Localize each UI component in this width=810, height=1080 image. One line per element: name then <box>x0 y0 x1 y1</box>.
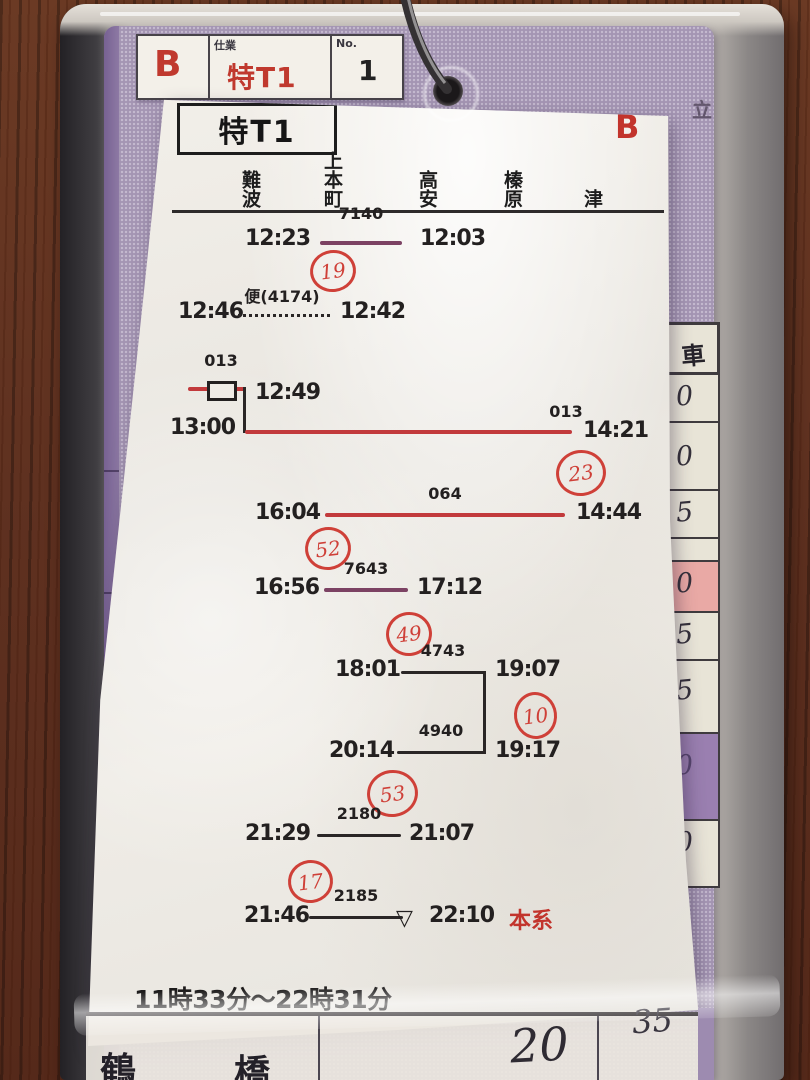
row-divider <box>597 1016 599 1080</box>
train-number: 013 <box>199 351 243 370</box>
station-name: 榛原 <box>501 170 523 208</box>
run-line <box>325 513 565 517</box>
run-line <box>320 241 402 245</box>
tag-duty-value: 特T1 <box>227 56 297 96</box>
duty-time-range: 11時33分〜22時31分 <box>134 980 392 1016</box>
run-line <box>401 671 485 674</box>
dep-time: 21:29 <box>245 821 310 846</box>
timetable-paper: 特T1 B 難波 上本町 高安 榛原 津 12:23 7140 12:03 19… <box>88 98 700 1046</box>
dep-time: 16:56 <box>254 575 319 600</box>
station-header-row: 難波 上本町 高安 榛原 津 <box>88 144 700 210</box>
punch-hole <box>433 76 463 106</box>
train-number: 便(4174) <box>230 283 334 307</box>
train-number: 4940 <box>397 721 485 740</box>
branch-time: 12:49 <box>255 380 320 405</box>
tag-number-value: 1 <box>358 54 377 87</box>
train-number: 7643 <box>324 559 408 578</box>
run-line <box>309 916 403 919</box>
train-number: 064 <box>405 484 485 503</box>
train-number: 4743 <box>401 641 485 660</box>
bracket-connector-line <box>483 671 486 754</box>
paper-corner-letter: B <box>615 108 639 146</box>
arr-time: 14:21 <box>583 418 648 443</box>
tag-number-header: No. <box>336 37 357 50</box>
tag-shift-letter: B <box>154 44 181 85</box>
box-marker <box>207 381 237 401</box>
run-line <box>324 588 408 592</box>
run-line <box>397 751 485 754</box>
dep-time: 13:00 <box>170 415 235 440</box>
row-divider <box>318 1016 320 1080</box>
row-purple-edge <box>698 1008 714 1080</box>
header-rule <box>172 210 664 213</box>
dep-time: 18:01 <box>335 657 400 682</box>
handwritten-circle-number: 23 <box>553 447 608 499</box>
arr-time: 19:07 <box>495 657 560 682</box>
station-name: 高安 <box>416 170 438 208</box>
tag-shift-cell: B <box>138 36 210 98</box>
train-number: 2180 <box>317 804 401 823</box>
bottom-station-char: 橋 <box>234 1044 270 1080</box>
run-line <box>317 834 401 837</box>
card-bottom-row: 鶴 橋 20 35 <box>86 1012 702 1080</box>
step-connector-line <box>243 387 246 433</box>
arr-time: 12:42 <box>340 299 405 324</box>
tag-duty-cell: 仕業 特T1 <box>210 36 332 98</box>
arr-time: 22:10 <box>429 903 494 928</box>
arr-time: 17:12 <box>417 575 482 600</box>
arr-time: 12:03 <box>420 226 485 251</box>
train-number: 2185 <box>309 886 403 905</box>
dep-time: 16:04 <box>255 500 320 525</box>
duty-tag-strip: B 仕業 特T1 No. 1 <box>136 34 404 100</box>
run-line-dotted <box>238 314 330 317</box>
photo-scene: B 仕業 特T1 No. 1 立 車 0 0 5 0 5 5 0 0 <box>0 0 810 1080</box>
handwritten-value: 20 <box>509 1017 570 1074</box>
handwritten-value: 35 <box>631 1001 674 1042</box>
arr-time: 21:07 <box>409 821 474 846</box>
station-name: 難波 <box>239 170 261 208</box>
station-name: 津 <box>581 189 603 208</box>
run-line <box>245 430 572 434</box>
triangle-marker: ▽ <box>396 906 413 931</box>
station-name: 上本町 <box>321 151 343 208</box>
tag-duty-header: 仕業 <box>214 37 236 53</box>
arr-time: 19:17 <box>495 738 560 763</box>
handwritten-circle-number: 10 <box>511 690 559 742</box>
tag-number-cell: No. 1 <box>332 36 402 98</box>
dep-time: 21:46 <box>244 903 309 928</box>
dep-time: 12:23 <box>245 226 310 251</box>
dep-time: 20:14 <box>329 738 394 763</box>
train-number: 7140 <box>320 204 402 223</box>
timetable-paper-wrap: 特T1 B 難波 上本町 高安 榛原 津 12:23 7140 12:03 19… <box>88 98 700 1046</box>
system-note: 本系 <box>509 903 553 935</box>
bottom-station-char: 鶴 <box>100 1042 136 1080</box>
arr-time: 14:44 <box>576 500 641 525</box>
